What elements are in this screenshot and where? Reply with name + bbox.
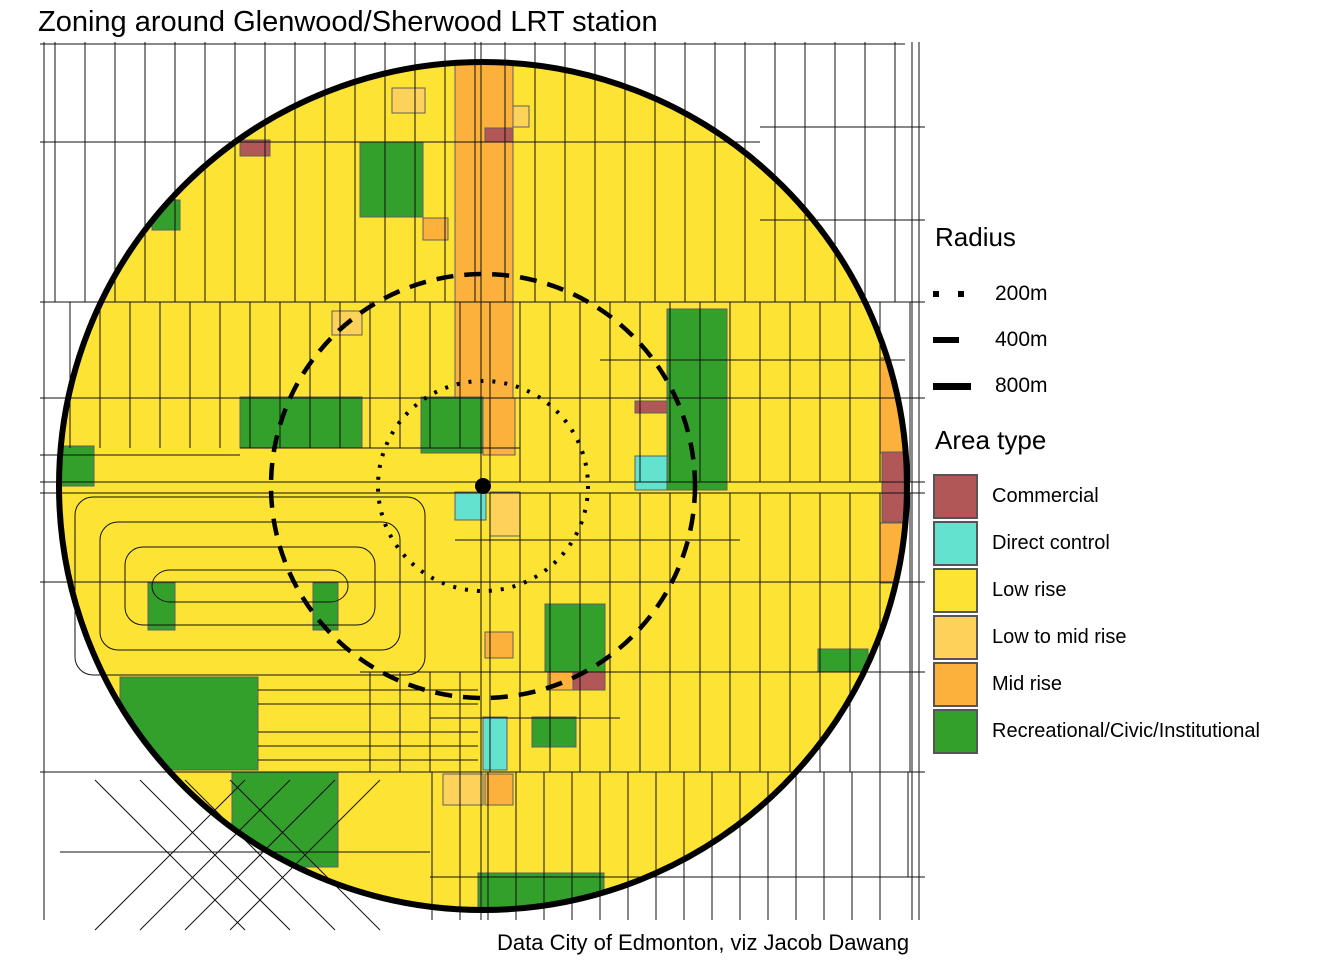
zone-mid_rise	[423, 218, 448, 240]
legend-area-label: Commercial	[992, 485, 1099, 508]
legend-radius: Radius 200m400m800m	[933, 222, 1333, 409]
legend-swatch-low_to_mid_rise	[933, 615, 978, 660]
legend-swatch-recreational	[933, 709, 978, 754]
legend-radius-item: 400m	[933, 317, 1333, 363]
zone-recreational	[360, 142, 423, 217]
legend-radius-label: 400m	[995, 328, 1048, 352]
station-dot	[475, 478, 491, 494]
legend-area-label: Low to mid rise	[992, 626, 1127, 649]
solid-line-sample	[933, 383, 995, 390]
zone-recreational	[232, 772, 338, 867]
legend-area-label: Low rise	[992, 579, 1066, 602]
dotted-line-sample	[933, 291, 995, 297]
legend-area-item: Recreational/Civic/Institutional	[933, 709, 1343, 753]
legend-radius-label: 800m	[995, 374, 1048, 398]
legend-swatch-commercial	[933, 474, 978, 519]
data-credit-caption: Data City of Edmonton, viz Jacob Dawang	[497, 930, 909, 956]
legend-area-item: Direct control	[933, 521, 1343, 565]
zone-mid_rise	[485, 774, 513, 805]
dashed-line-sample	[933, 337, 995, 343]
zone-direct_control	[483, 717, 507, 770]
zone-recreational	[545, 604, 605, 672]
zone-low_to_mid_rise	[513, 106, 529, 127]
zone-mid_rise	[455, 58, 513, 398]
legend-area-item: Commercial	[933, 474, 1343, 518]
zone-mid_rise	[483, 398, 515, 455]
legend-area-type: Area type CommercialDirect controlLow ri…	[933, 425, 1343, 756]
legend-swatch-direct_control	[933, 521, 978, 566]
legend-area-label: Recreational/Civic/Institutional	[992, 720, 1260, 743]
legend-area-item: Low to mid rise	[933, 615, 1343, 659]
zone-recreational	[478, 873, 604, 907]
legend-radius-label: 200m	[995, 282, 1048, 306]
zone-low_to_mid_rise	[490, 492, 520, 536]
zone-recreational	[240, 397, 362, 448]
legend-area-title: Area type	[935, 425, 1343, 456]
legend-area-item: Mid rise	[933, 662, 1343, 706]
legend-radius-title: Radius	[935, 222, 1333, 253]
zone-commercial	[882, 452, 904, 522]
legend-swatch-mid_rise	[933, 662, 978, 707]
legend-area-items: CommercialDirect controlLow riseLow to m…	[933, 474, 1343, 753]
legend-radius-item: 800m	[933, 363, 1333, 409]
zone-recreational	[60, 446, 94, 486]
zone-low_to_mid_rise	[392, 88, 425, 113]
zone-recreational	[120, 677, 258, 770]
zone-recreational	[313, 583, 338, 630]
zone-recreational	[532, 717, 576, 747]
zone-recreational	[818, 649, 868, 672]
legend-radius-items: 200m400m800m	[933, 271, 1333, 409]
zone-mid_rise	[485, 632, 513, 658]
legend-area-label: Direct control	[992, 532, 1110, 555]
legend-swatch-low_rise	[933, 568, 978, 613]
zone-commercial	[485, 128, 513, 142]
legend-area-label: Mid rise	[992, 673, 1062, 696]
legend-area-item: Low rise	[933, 568, 1343, 612]
zone-low_to_mid_rise	[443, 774, 483, 805]
legend-radius-item: 200m	[933, 271, 1333, 317]
